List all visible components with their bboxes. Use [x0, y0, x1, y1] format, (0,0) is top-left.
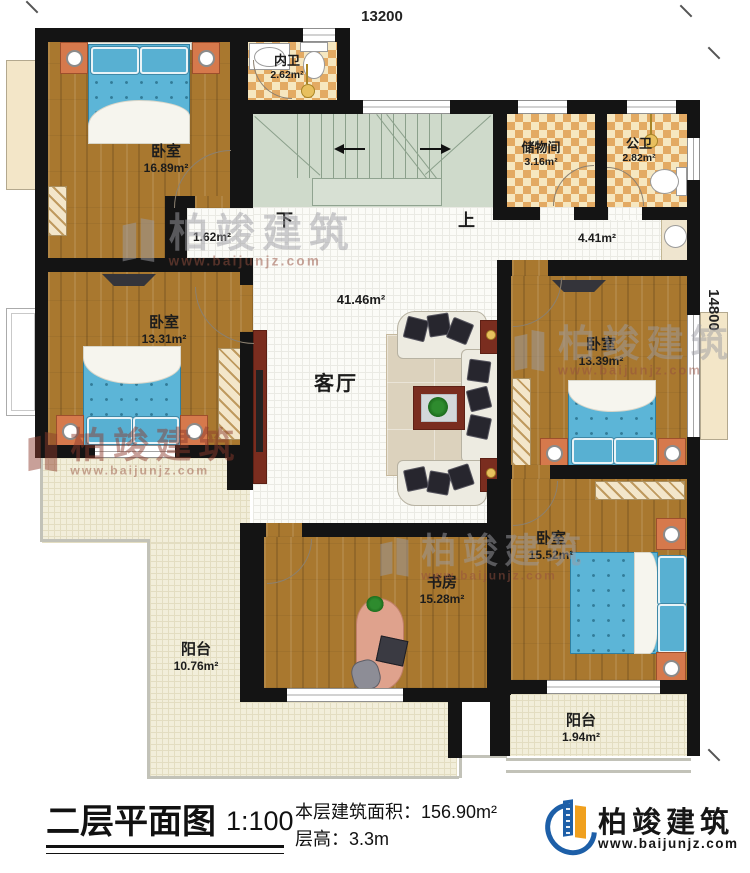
dimension-top: 13200 [347, 8, 417, 25]
pendant-lamp-icon [650, 114, 652, 134]
room-name: 书房 [420, 574, 465, 592]
lamp-icon [62, 423, 79, 440]
room-area: 2.62m² [270, 69, 303, 82]
room-name: 内卫 [270, 53, 303, 69]
title-underline [46, 845, 284, 854]
room-area: 3.16m² [521, 156, 560, 169]
stairs-up-label: 上 [458, 206, 475, 231]
window [687, 138, 700, 180]
room-label-bedroom-midright: 卧室 13.39m² [579, 336, 624, 368]
room-area: 15.28m² [420, 592, 465, 606]
pillow [140, 47, 188, 74]
room-balcony-large-c [150, 702, 457, 776]
wall [490, 694, 510, 756]
room-balcony-large-b [150, 543, 240, 704]
door-opening [266, 523, 302, 537]
cushion [466, 414, 492, 440]
pillow [91, 47, 139, 74]
window [303, 28, 335, 42]
room-label-public-bath: 公卫 2.82m² [622, 136, 655, 164]
room-label-balcony-large: 阳台 10.76m² [174, 641, 219, 673]
wardrobe [512, 378, 531, 466]
room-area: 2.82m² [622, 152, 655, 165]
room-name: 卧室 [529, 530, 574, 548]
room-area: 15.52m² [529, 548, 574, 562]
brand-name: 柏竣建筑 [598, 799, 734, 841]
lamp-icon [66, 50, 83, 67]
wall [35, 28, 48, 458]
brand-logo-tower-blue [563, 799, 573, 836]
plant-icon [428, 397, 448, 417]
room-area: 13.31m² [142, 332, 187, 346]
pendant-lamp-icon [301, 84, 315, 98]
room-name: 储物间 [521, 140, 560, 156]
wall [227, 445, 253, 490]
balcony-railing [40, 539, 150, 542]
dimension-tick [26, 1, 39, 14]
window [95, 445, 175, 458]
room-name: 卧室 [142, 314, 187, 332]
window [627, 100, 676, 114]
stairs-down-label: 下 [276, 206, 293, 231]
wardrobe [218, 348, 242, 440]
sink-icon [664, 225, 687, 248]
dimension-right: 14800 [702, 268, 722, 352]
pillow [572, 438, 614, 464]
wall [493, 114, 507, 207]
pillow [87, 417, 133, 444]
room-name: 公卫 [622, 136, 655, 152]
dimension-tick [708, 749, 721, 762]
computer-icon [376, 635, 409, 666]
room-area: 41.46m² [337, 292, 385, 308]
room-name: 阳台 [174, 641, 219, 659]
window [363, 100, 450, 114]
nightstand [192, 42, 220, 74]
room-label-living-area: 41.46m² [337, 292, 385, 308]
balcony-railing [506, 758, 691, 761]
nightstand [658, 438, 686, 468]
room-area: 13.39m² [579, 354, 624, 368]
room-label-bedroom-topleft: 卧室 16.89m² [144, 143, 189, 175]
brand-logo-tower-orange [575, 805, 586, 839]
floor-area-text: 本层建筑面积：156.90m² [295, 798, 497, 824]
bed-sheet [88, 100, 190, 144]
room-area: 10.76m² [174, 659, 219, 673]
room-label-balcony-small: 阳台 1.94m² [562, 712, 600, 744]
wall [487, 479, 511, 695]
wall [240, 523, 264, 702]
door-opening [608, 207, 642, 220]
room-balcony-large-a [42, 458, 250, 543]
room-area: 1.62m² [193, 230, 231, 244]
stair-landing [312, 178, 442, 206]
lamp-icon [664, 445, 681, 462]
window [547, 680, 660, 694]
room-area: 4.41m² [578, 231, 616, 245]
wardrobe [595, 481, 685, 500]
stair-direction-arrow [420, 148, 442, 150]
window [687, 315, 700, 437]
room-area: 16.89m² [144, 161, 189, 175]
room-label-living: 客厅 [314, 372, 358, 396]
wall [687, 694, 700, 756]
room-label-study: 书房 15.28m² [420, 574, 465, 606]
lamp-icon [663, 660, 680, 677]
floor-plan-page: 卧室 16.89m² 内卫 2.62m² 储物间 3.16m² 公卫 2.82m… [0, 0, 750, 873]
bed-sheet [634, 552, 660, 654]
brand-website: www.baijunjz.com [598, 836, 739, 851]
plan-scale: 1:100 [226, 806, 294, 837]
room-label-bedroom-bottomright: 卧室 15.52m² [529, 530, 574, 562]
tv-icon [256, 370, 263, 452]
room-label-storage: 储物间 3.16m² [521, 140, 560, 168]
wall [497, 260, 511, 465]
wall [493, 207, 700, 220]
room-name: 卧室 [579, 336, 624, 354]
nightstand [540, 438, 568, 468]
room-label-ensuite: 内卫 2.62m² [270, 53, 303, 81]
pillow [133, 417, 179, 444]
lamp-icon [486, 330, 496, 340]
nightstand [56, 415, 84, 447]
pillow [658, 604, 686, 653]
balcony-railing [147, 776, 459, 779]
nightstand [180, 415, 208, 447]
brand-logo-icon [546, 794, 594, 852]
room-name: 卧室 [144, 143, 189, 161]
lamp-icon [186, 423, 203, 440]
wall [448, 700, 462, 758]
room-area: 1.94m² [562, 730, 600, 744]
room-name: 客厅 [314, 372, 358, 396]
nightstand [60, 42, 88, 74]
pillow [658, 556, 686, 605]
toilet-icon [650, 169, 679, 194]
door-opening [512, 465, 550, 479]
balcony-railing [506, 770, 691, 773]
plan-title: 二层平面图 [46, 794, 216, 843]
wardrobe [48, 186, 67, 236]
room-label-hall-small: 1.62m² [193, 230, 231, 244]
stair-direction-arrow [343, 148, 365, 150]
lamp-icon [486, 468, 496, 478]
balcony-railing [40, 458, 43, 542]
window [287, 688, 403, 702]
door-opening [512, 260, 548, 276]
room-label-bedroom-midleft: 卧室 13.31m² [142, 314, 187, 346]
door-opening [240, 208, 253, 258]
window [518, 100, 567, 114]
lamp-icon [546, 445, 563, 462]
dimension-tick [708, 47, 721, 60]
wall [595, 114, 607, 207]
pillow [614, 438, 656, 464]
plant-icon [366, 596, 384, 612]
dimension-tick [680, 5, 693, 18]
lamp-icon [663, 526, 680, 543]
cushion [403, 466, 429, 492]
wall [35, 258, 245, 272]
room-name: 阳台 [562, 712, 600, 730]
door-opening [540, 207, 574, 220]
floor-height-text: 层高：3.3m [295, 825, 389, 851]
cushion [467, 359, 492, 384]
nightstand [656, 518, 686, 550]
balcony-railing [147, 539, 150, 779]
pendant-lamp-icon [306, 64, 308, 84]
room-label-hall-upper: 4.41m² [578, 231, 616, 245]
lamp-icon [198, 50, 215, 67]
